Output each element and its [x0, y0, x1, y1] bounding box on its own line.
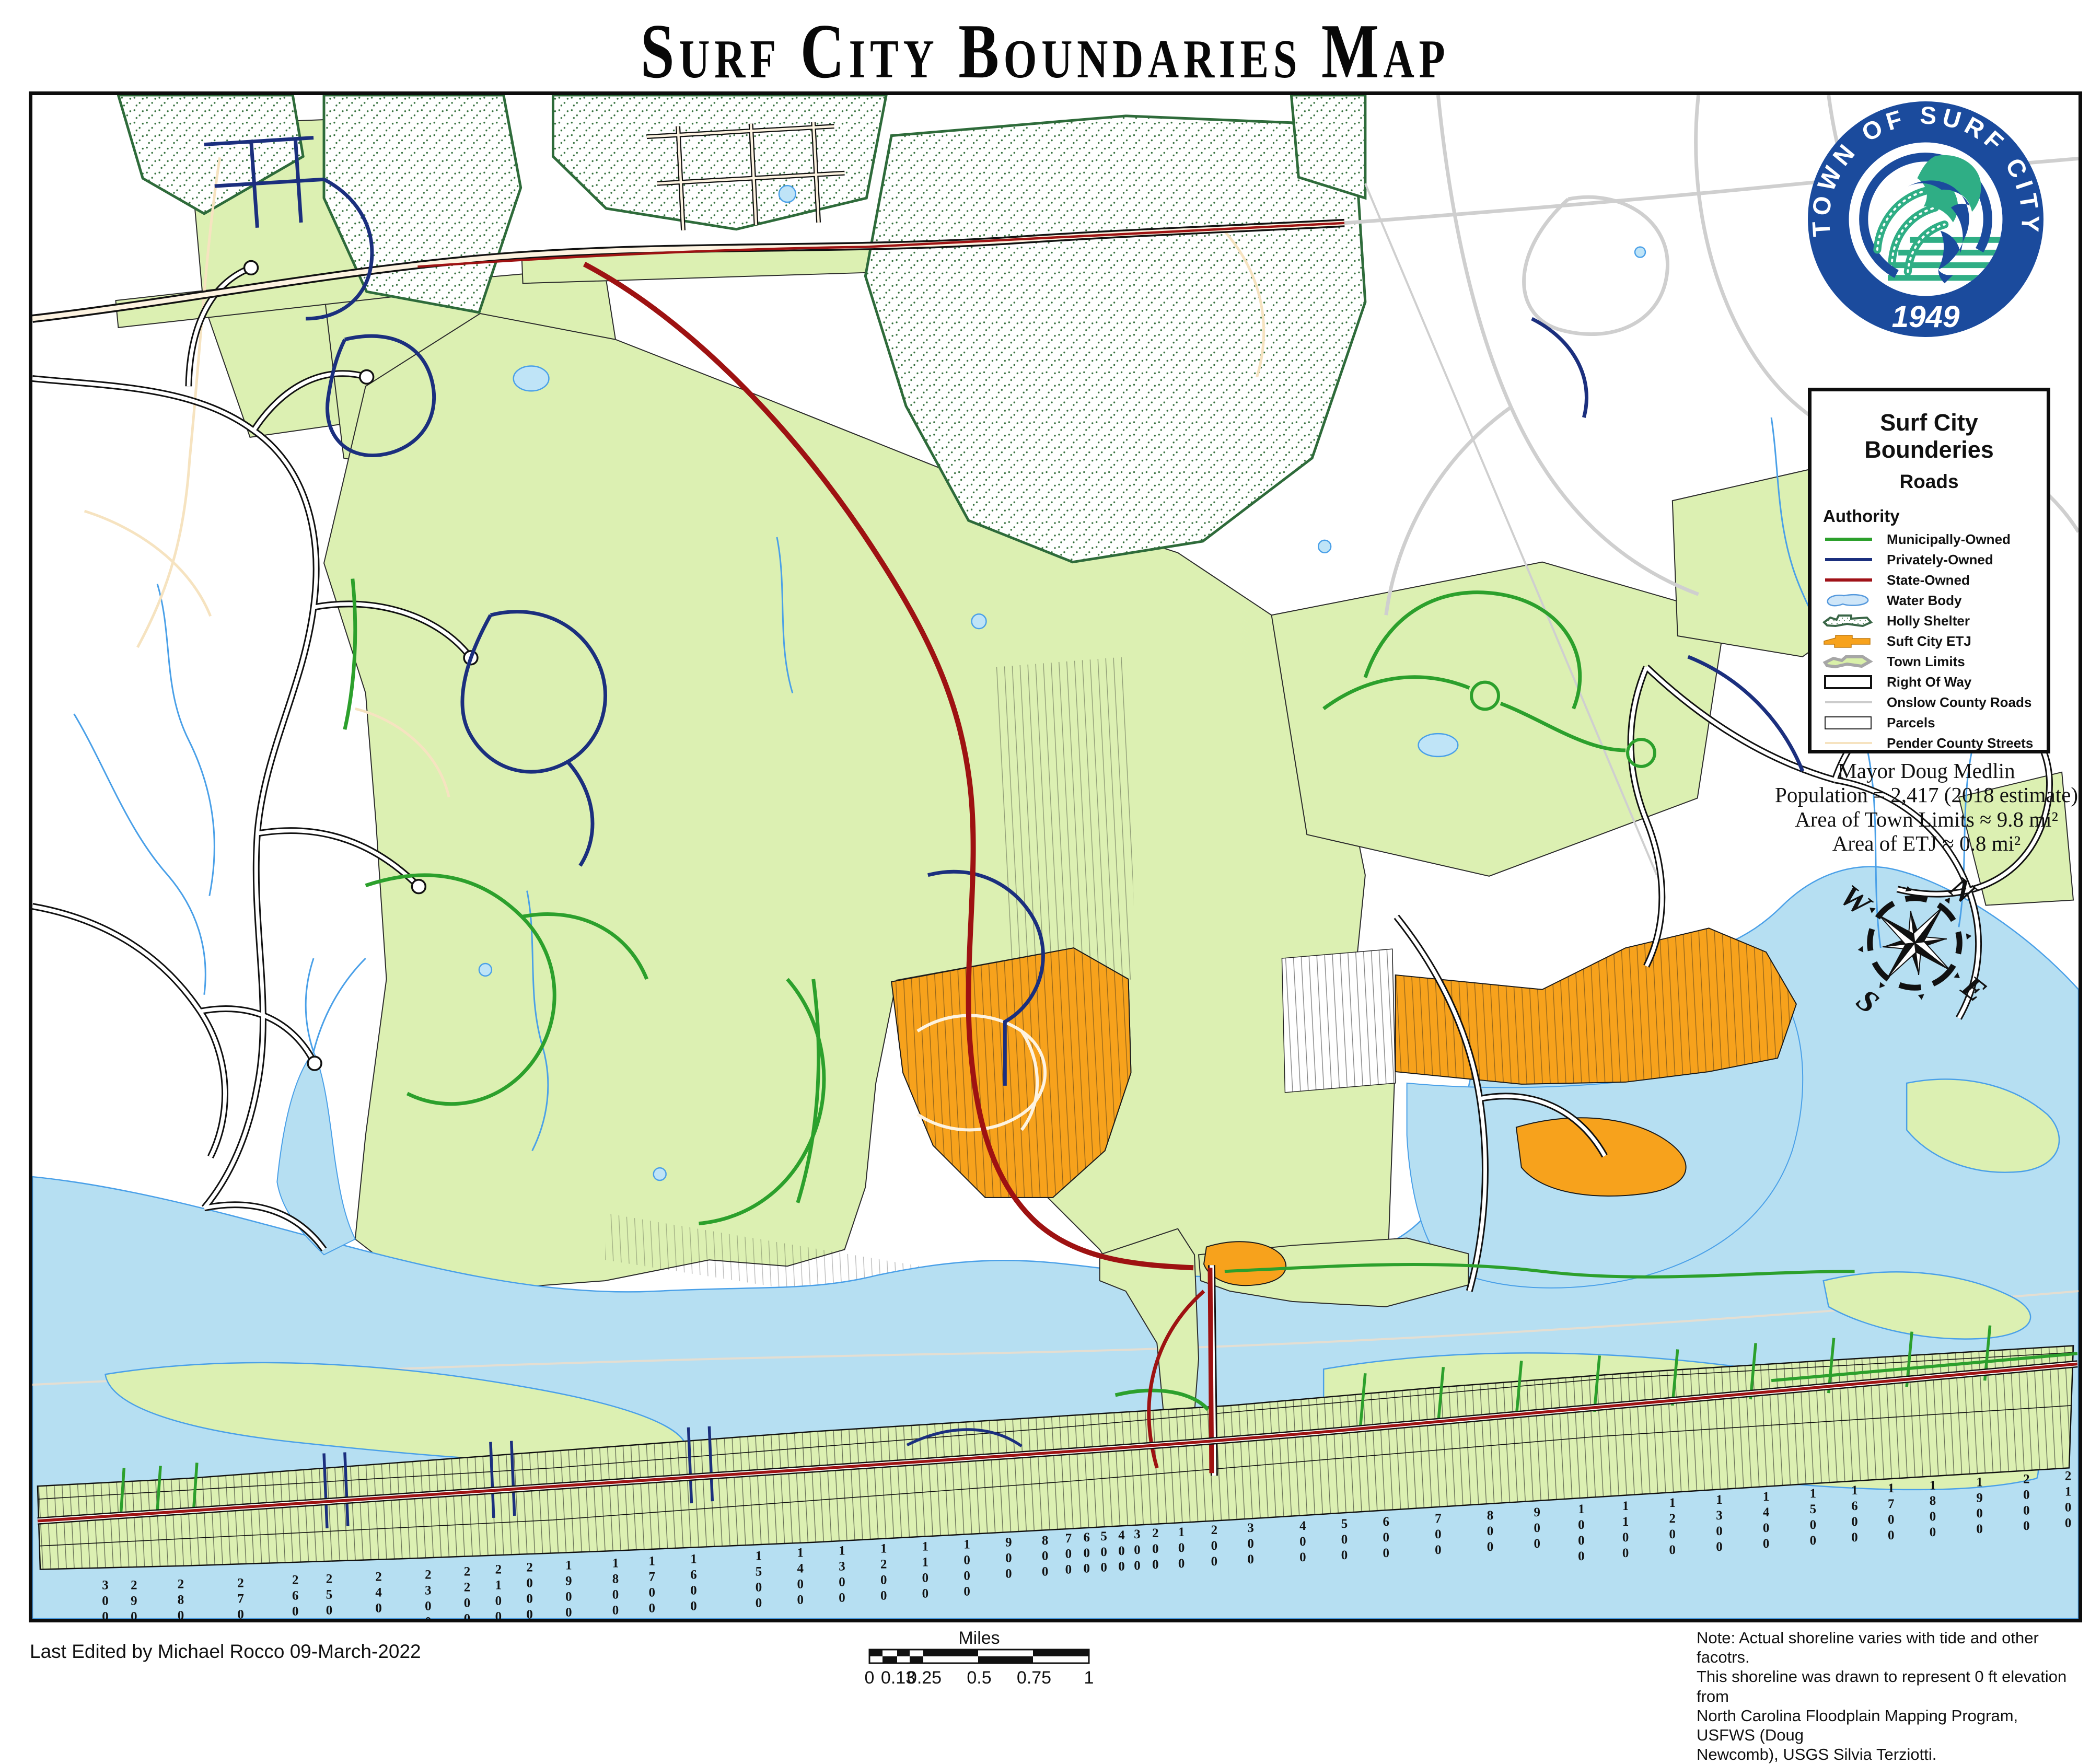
ocean-block-number: 1200: [877, 1542, 891, 1605]
ocean-block-number: 2600: [288, 1573, 303, 1619]
compass-s-label: S: [1850, 982, 1885, 1020]
municipal-line-swatch: [1820, 530, 1880, 549]
compass-n-label: N: [1942, 869, 1982, 911]
compass-w-label: W: [1834, 878, 1879, 923]
private-line-swatch: [1820, 550, 1880, 570]
legend-title: Surf City Bounderies: [1815, 409, 2043, 463]
legend-item-state: State-Owned: [1812, 570, 2047, 590]
compass-rose: N E S W: [1822, 850, 2007, 1036]
page-title: Surf City Boundaries Map: [0, 7, 2090, 97]
scale-bar-title: Miles: [868, 1628, 1090, 1649]
scale-tick: 0: [865, 1668, 875, 1688]
ocean-block-number: 2400: [371, 1570, 386, 1619]
ocean-block-number: 500: [1338, 1517, 1352, 1564]
ocean-block-number: 1300: [1712, 1493, 1726, 1556]
town-area-line: Area of Town Limits ≈ 9.8 mi²: [1772, 807, 2081, 831]
legend-item-municipal: Municipally-Owned: [1812, 529, 2047, 550]
legend-item-onslow: Onslow County Roads: [1812, 692, 2047, 713]
ocean-block-number: 1700: [645, 1554, 659, 1617]
ocean-block-number: 3000: [98, 1578, 112, 1619]
ocean-block-number: 1600: [1848, 1483, 1862, 1546]
ocean-block-number: 1000: [960, 1538, 974, 1600]
ocean-block-number: 1400: [793, 1546, 807, 1609]
ocean-block-number: 2700: [234, 1576, 248, 1619]
ocean-block-number: 900: [1002, 1536, 1016, 1583]
ocean-block-number: 300: [1244, 1521, 1258, 1568]
mayor-line: Mayor Doug Medlin: [1772, 759, 2081, 783]
state-line-swatch: [1820, 571, 1880, 590]
right-of-way-swatch: [1820, 672, 1880, 692]
ocean-block-number: 1700: [1884, 1481, 1898, 1544]
holly-shelter-swatch: [1820, 611, 1880, 631]
page: { "page": { "title": "Surf City Boundari…: [0, 0, 2090, 1710]
ocean-block-number: 800: [1483, 1508, 1497, 1556]
ocean-block-number: 300: [1130, 1527, 1144, 1574]
scale-bar-ticks: 0 0.13 0.25 0.5 0.75 1: [868, 1668, 1090, 1691]
scale-bar-graphic: [868, 1649, 1090, 1664]
ocean-block-number: 1500: [752, 1549, 766, 1612]
ocean-block-number: 1500: [1806, 1487, 1820, 1549]
ocean-block-number: 200: [1207, 1523, 1221, 1570]
ocean-block-number: 1600: [687, 1552, 701, 1615]
scale-tick: 0.5: [967, 1668, 991, 1688]
ocean-block-number: 100: [1175, 1525, 1189, 1572]
logo-year: 1949: [1892, 300, 1960, 334]
ocean-block-number: 900: [1530, 1505, 1544, 1552]
ocean-block-number: 700: [1061, 1531, 1075, 1579]
ocean-block-number: 1300: [835, 1544, 849, 1607]
legend: Surf City Bounderies Roads Authority Mun…: [1808, 388, 2050, 753]
ocean-block-number: 1800: [609, 1557, 623, 1619]
town-logo: TOWN OF SURF CITY 1949: [1807, 100, 2045, 338]
onslow-line-swatch: [1820, 693, 1880, 712]
legend-item-private: Privately-Owned: [1812, 550, 2047, 570]
map-canvas: 3000290028002700260025002400230022002100…: [32, 95, 2079, 1619]
legend-subtitle: Roads: [1812, 471, 2047, 493]
ocean-block-number: 2300: [421, 1568, 435, 1619]
town-info: Mayor Doug Medlin Population = 2,417 (20…: [1772, 759, 2081, 855]
legend-item-etj: Suft City ETJ: [1812, 631, 2047, 652]
scale-bar: Miles 0 0.13 0.25 0.5 0.75 1: [868, 1628, 1090, 1691]
scale-tick: 1: [1084, 1668, 1094, 1688]
map-frame: 3000290028002700260025002400230022002100…: [29, 91, 2082, 1622]
ocean-block-number: 2800: [173, 1577, 188, 1619]
ocean-block-number: 600: [1079, 1530, 1094, 1577]
etj-swatch: [1820, 632, 1880, 651]
ocean-block-number: 400: [1296, 1519, 1310, 1566]
population-line: Population = 2,417 (2018 estimate): [1772, 783, 2081, 807]
parcels-swatch: [1820, 713, 1880, 733]
legend-item-holly: Holly Shelter: [1812, 611, 2047, 631]
ocean-block-number: 400: [1114, 1528, 1129, 1575]
ocean-block-number: 1100: [918, 1540, 932, 1603]
legend-item-right-of-way: Right Of Way: [1812, 672, 2047, 692]
ocean-block-number: 1000: [1574, 1502, 1588, 1565]
ocean-block-number: 1900: [562, 1559, 576, 1619]
legend-item-water: Water Body: [1812, 590, 2047, 611]
compass-e-label: E: [1955, 968, 1993, 1008]
ocean-block-number: 2900: [127, 1578, 141, 1619]
ocean-block-number: 600: [1379, 1515, 1393, 1562]
ocean-block-number: 1100: [1619, 1499, 1633, 1562]
ocean-block-number: 2000: [522, 1561, 537, 1619]
ocean-block-number: 1400: [1759, 1490, 1773, 1552]
ocean-block-number: 2500: [322, 1572, 336, 1619]
ocean-block-number: 2200: [460, 1564, 474, 1619]
legend-item-parcels: Parcels: [1812, 713, 2047, 733]
ocean-block-number: 800: [1038, 1534, 1052, 1581]
scale-tick: 0.75: [1017, 1668, 1051, 1688]
ocean-block-number: 1800: [1925, 1478, 1940, 1541]
last-edited-note: Last Edited by Michael Rocco 09-March-20…: [30, 1641, 421, 1663]
town-limits-swatch: [1820, 652, 1880, 671]
pender-line-swatch: [1820, 734, 1880, 753]
ocean-block-number: 2100: [491, 1563, 505, 1619]
ocean-block-number: 500: [1097, 1529, 1111, 1576]
ocean-block-number: 1900: [1972, 1475, 1987, 1538]
shoreline-note: Note: Actual shoreline varies with tide …: [1697, 1628, 2073, 1764]
legend-item-pender: Pender County Streets: [1812, 733, 2047, 753]
ocean-block-number: 700: [1431, 1512, 1445, 1559]
scale-tick: 0.25: [907, 1668, 942, 1688]
ocean-block-number: 2100: [2061, 1469, 2075, 1531]
ocean-block-number: 2000: [2019, 1472, 2034, 1535]
water-body-swatch: [1820, 591, 1880, 610]
ocean-block-number: 1200: [1665, 1496, 1679, 1559]
legend-item-town-limits: Town Limits: [1812, 652, 2047, 672]
legend-section-authority: Authority: [1823, 506, 2047, 526]
ocean-block-number: 200: [1148, 1526, 1163, 1573]
